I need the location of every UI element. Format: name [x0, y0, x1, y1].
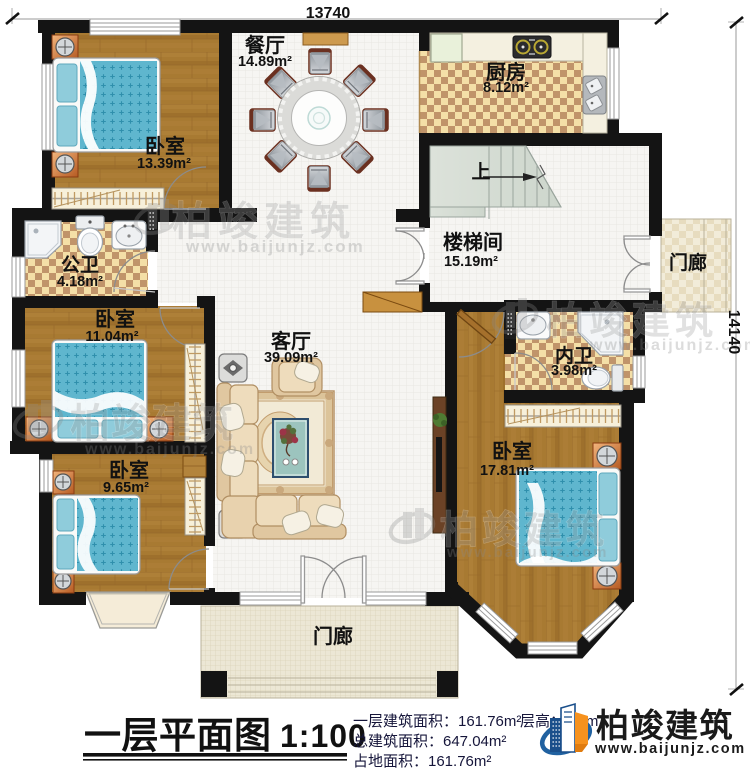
- svg-text:39.09m²: 39.09m²: [264, 350, 318, 366]
- svg-text:4.18m²: 4.18m²: [57, 274, 103, 290]
- svg-text:门廊: 门廊: [669, 251, 707, 274]
- svg-text:上: 上: [471, 161, 490, 183]
- svg-text:卧室: 卧室: [492, 439, 532, 463]
- svg-text:15.19m²: 15.19m²: [444, 254, 498, 270]
- svg-text:一层平面图: 一层平面图: [84, 715, 272, 756]
- svg-text:www.baijunjz.com: www.baijunjz.com: [594, 741, 746, 757]
- svg-text:卧室: 卧室: [145, 134, 185, 158]
- svg-text:17.81m²: 17.81m²: [480, 463, 534, 479]
- svg-text:门廊: 门廊: [313, 624, 353, 648]
- svg-text:14.89m²: 14.89m²: [238, 54, 292, 70]
- svg-text:13740: 13740: [306, 5, 351, 22]
- svg-text:11.04m²: 11.04m²: [85, 329, 138, 345]
- svg-text:楼梯间: 楼梯间: [443, 230, 503, 254]
- svg-text:www.baijunjz.com: www.baijunjz.com: [446, 544, 608, 561]
- svg-text:www.baijunjz.com: www.baijunjz.com: [185, 237, 365, 256]
- svg-text:卧室: 卧室: [95, 307, 135, 331]
- svg-text:3.98m²: 3.98m²: [551, 363, 597, 379]
- svg-text:占地面积：161.76m²: 占地面积：161.76m²: [353, 753, 491, 770]
- svg-text:13.39m²: 13.39m²: [137, 156, 191, 172]
- svg-text:总建筑面积：647.04m²: 总建筑面积：647.04m²: [353, 733, 506, 750]
- svg-text:14140: 14140: [725, 310, 742, 355]
- svg-text:一层建筑面积：161.76m²: 一层建筑面积：161.76m²: [353, 713, 521, 730]
- svg-text:柏竣建筑: 柏竣建筑: [596, 707, 734, 744]
- svg-text:卧室: 卧室: [109, 458, 149, 482]
- svg-text:9.65m²: 9.65m²: [103, 480, 149, 496]
- svg-text:8.12m²: 8.12m²: [483, 80, 529, 96]
- svg-text:公卫: 公卫: [61, 254, 99, 276]
- svg-text:柏竣建筑: 柏竣建筑: [70, 402, 234, 446]
- svg-text:www.baijunjz.com: www.baijunjz.com: [84, 441, 255, 458]
